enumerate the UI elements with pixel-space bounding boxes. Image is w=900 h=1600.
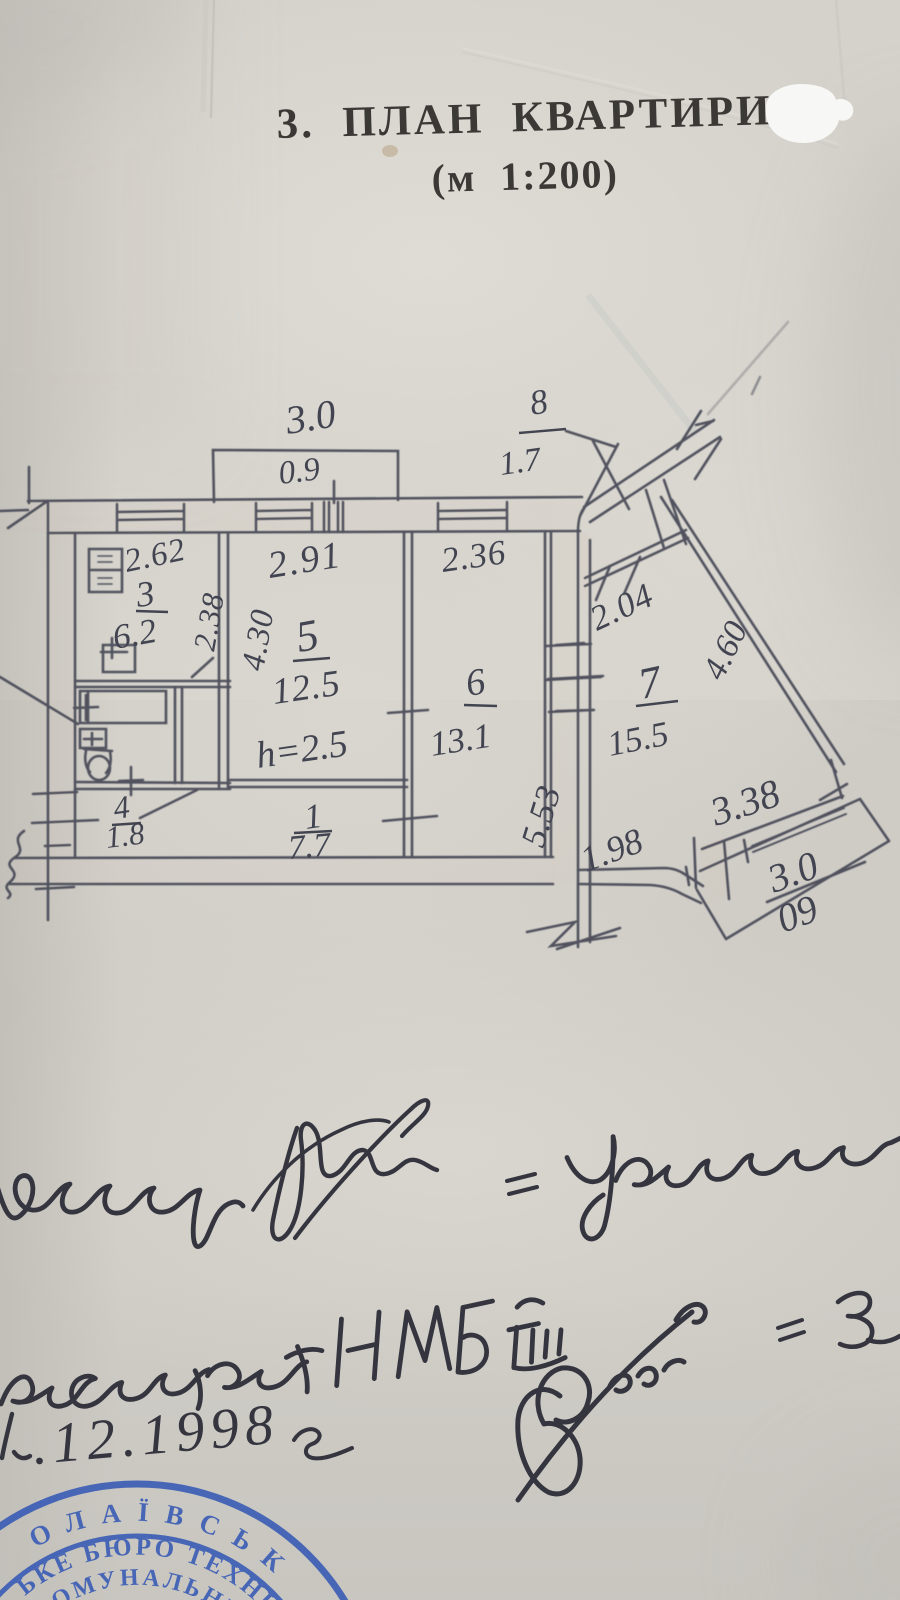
- svg-text:3.0: 3.0: [281, 391, 338, 443]
- svg-text:1.8: 1.8: [104, 815, 147, 855]
- svg-text:1.7: 1.7: [497, 441, 544, 483]
- svg-text:6.2: 6.2: [110, 611, 160, 657]
- svg-text:(м 1:200): (м 1:200): [431, 151, 619, 201]
- svg-text:7.7: 7.7: [286, 826, 334, 867]
- svg-text:0.9: 0.9: [277, 451, 322, 492]
